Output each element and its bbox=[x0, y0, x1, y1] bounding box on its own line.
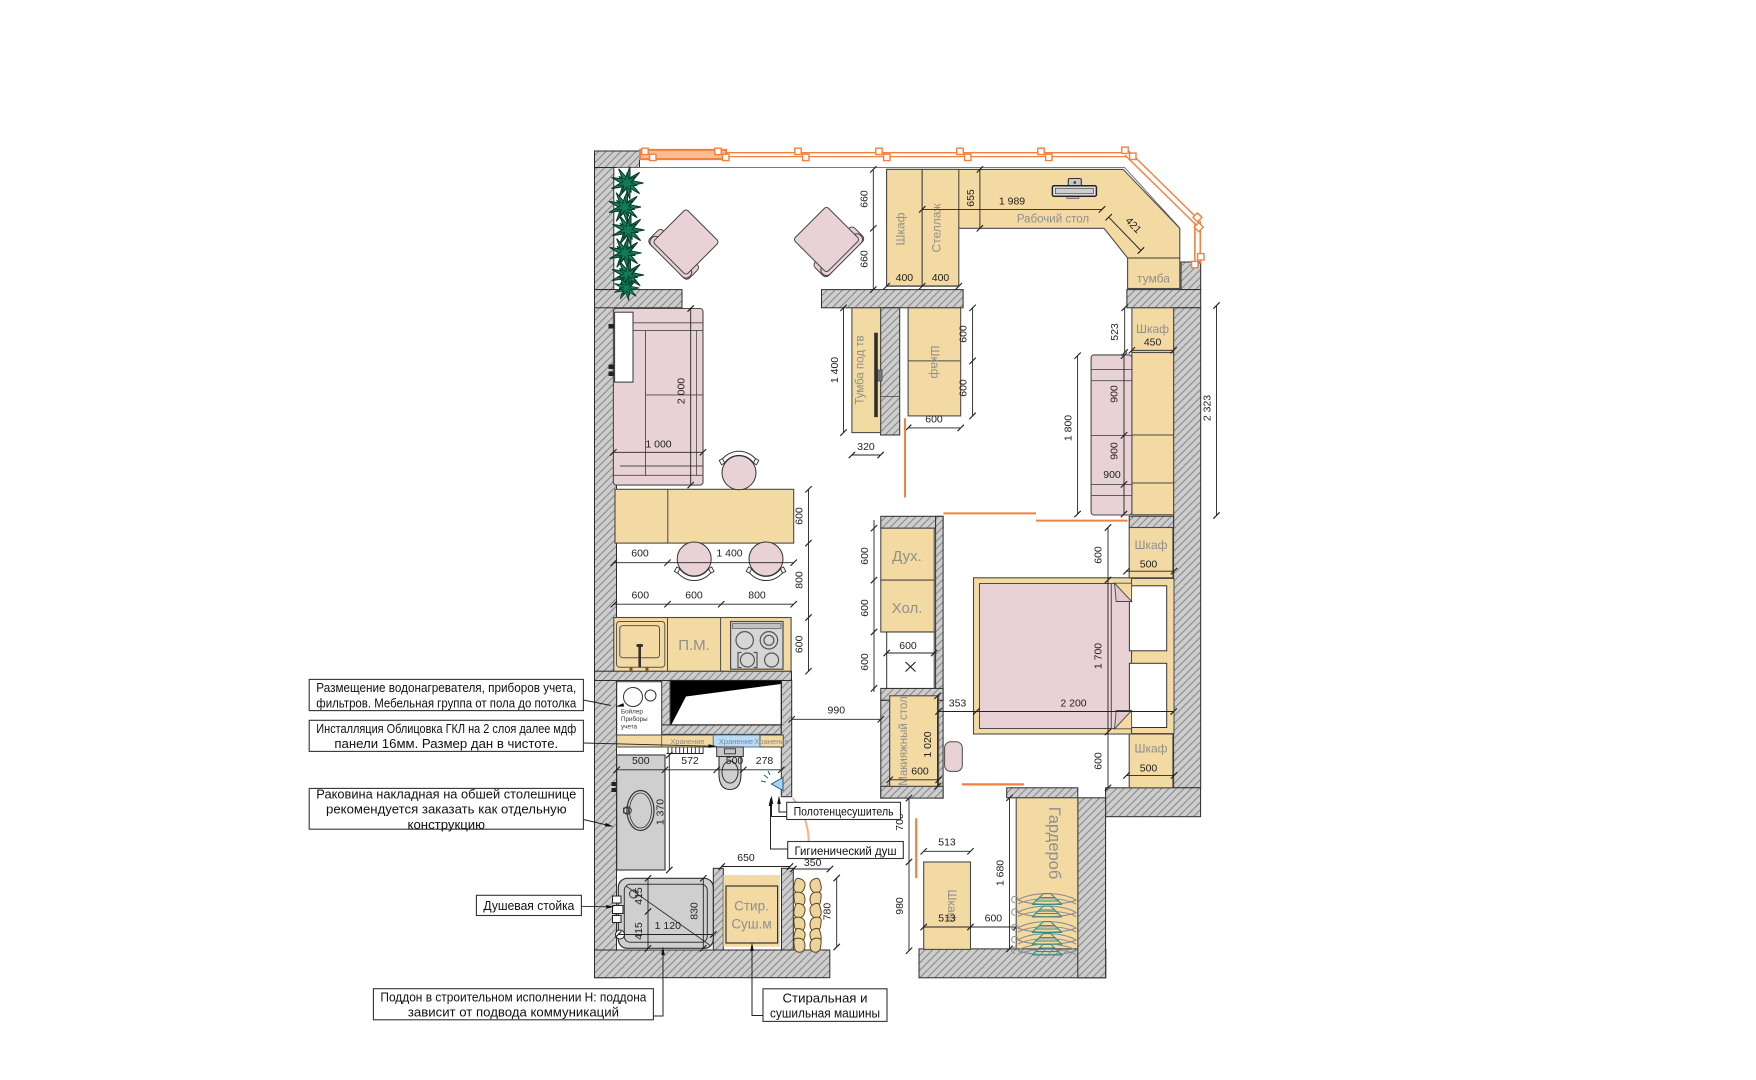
svg-text:Шкаф: Шкаф bbox=[1134, 742, 1167, 756]
svg-text:572: 572 bbox=[681, 755, 699, 767]
svg-text:660: 660 bbox=[859, 250, 871, 268]
svg-text:600: 600 bbox=[859, 653, 871, 671]
svg-text:Гардероб: Гардероб bbox=[1045, 807, 1063, 880]
svg-text:Гигиенический душ: Гигиенический душ bbox=[795, 844, 897, 858]
svg-text:панели 16мм. Размер дан в чист: панели 16мм. Размер дан в чистоте. bbox=[334, 736, 558, 751]
svg-text:1 400: 1 400 bbox=[716, 548, 742, 560]
svg-text:Шкаф: Шкаф bbox=[894, 212, 908, 245]
svg-text:415: 415 bbox=[633, 922, 645, 940]
svg-text:655: 655 bbox=[965, 189, 977, 207]
svg-text:600: 600 bbox=[685, 590, 703, 602]
svg-text:400: 400 bbox=[896, 272, 914, 284]
svg-text:конструкцию: конструкцию bbox=[408, 817, 486, 832]
svg-text:Стеллаж: Стеллаж bbox=[930, 203, 944, 252]
svg-text:Инсталляция Облицовка ГКЛ на 2: Инсталляция Облицовка ГКЛ на 2 слоя дале… bbox=[316, 721, 576, 736]
svg-text:1 370: 1 370 bbox=[655, 799, 667, 825]
svg-text:500: 500 bbox=[726, 755, 744, 767]
svg-text:513: 513 bbox=[938, 837, 956, 849]
svg-text:Суш.м: Суш.м bbox=[731, 917, 771, 932]
svg-text:600: 600 bbox=[859, 547, 871, 565]
svg-text:Шкаф: Шкаф bbox=[928, 345, 942, 378]
svg-text:1 000: 1 000 bbox=[645, 439, 671, 451]
svg-text:учета: учета bbox=[621, 724, 638, 731]
svg-text:Приборы: Приборы bbox=[621, 715, 648, 723]
svg-text:рекомендуется заказать как отд: рекомендуется заказать как отдельную bbox=[326, 802, 567, 817]
svg-text:600: 600 bbox=[985, 912, 1003, 924]
svg-text:600: 600 bbox=[911, 766, 929, 778]
svg-text:600: 600 bbox=[1093, 546, 1105, 564]
svg-text:1 700: 1 700 bbox=[1093, 643, 1105, 669]
svg-text:400: 400 bbox=[932, 272, 950, 284]
svg-text:Шкаф: Шкаф bbox=[1134, 538, 1167, 552]
svg-text:Хранение: Хранение bbox=[719, 737, 753, 746]
svg-text:Макияжный стол: Макияжный стол bbox=[898, 696, 910, 785]
svg-text:1 120: 1 120 bbox=[655, 920, 681, 932]
svg-text:600: 600 bbox=[958, 325, 970, 343]
svg-text:800: 800 bbox=[748, 590, 766, 602]
svg-text:830: 830 bbox=[688, 902, 700, 920]
svg-text:Стиральная и: Стиральная и bbox=[783, 990, 868, 1005]
svg-text:Дух.: Дух. bbox=[892, 548, 922, 565]
svg-text:600: 600 bbox=[793, 507, 805, 525]
svg-text:980: 980 bbox=[894, 897, 906, 915]
svg-text:Раковина накладная на обшей ст: Раковина накладная на обшей столешнице bbox=[316, 786, 576, 801]
svg-text:Душевая стойка: Душевая стойка bbox=[483, 898, 575, 913]
svg-text:600: 600 bbox=[958, 379, 970, 397]
svg-text:Стир.: Стир. bbox=[734, 899, 769, 914]
svg-text:1 800: 1 800 bbox=[1063, 415, 1075, 441]
svg-text:2 323: 2 323 bbox=[1202, 395, 1214, 421]
svg-text:П.М.: П.М. bbox=[678, 637, 710, 654]
svg-text:500: 500 bbox=[1140, 763, 1158, 775]
svg-text:1 020: 1 020 bbox=[922, 731, 934, 757]
svg-text:650: 650 bbox=[737, 852, 755, 864]
svg-text:900: 900 bbox=[1109, 442, 1121, 460]
svg-text:Полотенцесушитель: Полотенцесушитель bbox=[794, 806, 894, 819]
svg-text:278: 278 bbox=[756, 755, 774, 767]
svg-text:сушильная машины: сушильная машины bbox=[770, 1006, 880, 1021]
svg-text:тумба: тумба bbox=[1137, 272, 1170, 286]
svg-text:Бойлер: Бойлер bbox=[621, 708, 643, 716]
svg-text:900: 900 bbox=[1109, 385, 1121, 403]
svg-text:990: 990 bbox=[828, 704, 846, 716]
svg-text:Шкаф: Шкаф bbox=[1136, 322, 1169, 336]
svg-text:500: 500 bbox=[1140, 559, 1158, 571]
svg-text:Хол.: Хол. bbox=[892, 600, 923, 617]
svg-text:513: 513 bbox=[938, 912, 956, 924]
svg-text:500: 500 bbox=[632, 755, 650, 767]
svg-text:600: 600 bbox=[899, 640, 917, 652]
svg-text:600: 600 bbox=[632, 590, 650, 602]
svg-text:415: 415 bbox=[633, 887, 645, 905]
svg-text:600: 600 bbox=[631, 548, 649, 560]
svg-text:900: 900 bbox=[1103, 469, 1121, 481]
svg-text:1 680: 1 680 bbox=[995, 860, 1007, 886]
svg-text:Рабочий стол: Рабочий стол bbox=[1017, 214, 1089, 226]
svg-text:зависит от подвода коммуникаци: зависит от подвода коммуникаций bbox=[408, 1005, 619, 1020]
svg-text:600: 600 bbox=[925, 414, 943, 426]
svg-text:523: 523 bbox=[1109, 323, 1121, 341]
svg-text:353: 353 bbox=[949, 698, 967, 710]
svg-text:780: 780 bbox=[822, 903, 834, 921]
svg-text:Тумба под тв: Тумба под тв bbox=[855, 335, 867, 404]
svg-text:450: 450 bbox=[1144, 337, 1162, 349]
svg-text:600: 600 bbox=[1093, 752, 1105, 770]
svg-text:600: 600 bbox=[793, 635, 805, 653]
svg-text:1 400: 1 400 bbox=[829, 357, 841, 383]
svg-text:Хранение: Хранение bbox=[670, 737, 704, 746]
svg-text:Хранение: Хранение bbox=[754, 737, 788, 746]
svg-text:2 000: 2 000 bbox=[676, 378, 688, 404]
svg-text:800: 800 bbox=[793, 571, 805, 589]
svg-text:Поддон в строительном исполнен: Поддон в строительном исполнении H: подд… bbox=[380, 989, 647, 1004]
svg-text:660: 660 bbox=[859, 190, 871, 208]
svg-text:600: 600 bbox=[859, 599, 871, 617]
svg-text:1 989: 1 989 bbox=[999, 196, 1025, 208]
svg-text:фильтров. Мебельная группа от: фильтров. Мебельная группа от пола до по… bbox=[316, 695, 577, 710]
svg-text:Размещение водонагревателя, п: Размещение водонагревателя, приборов уче… bbox=[316, 680, 576, 695]
svg-text:2 200: 2 200 bbox=[1060, 698, 1086, 710]
svg-text:320: 320 bbox=[857, 441, 875, 453]
